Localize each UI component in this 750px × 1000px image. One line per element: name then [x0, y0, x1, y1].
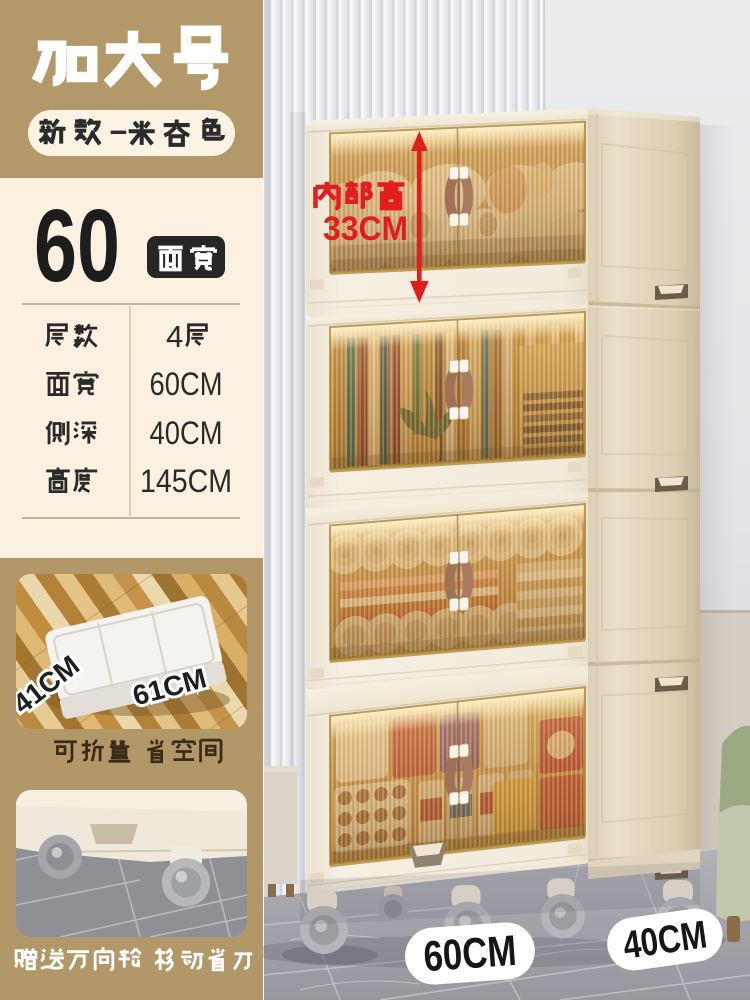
svg-text:4: 4	[166, 319, 183, 354]
svg-text:145CM: 145CM	[140, 463, 232, 499]
svg-text:60: 60	[34, 188, 120, 303]
svg-text:33CM: 33CM	[323, 210, 408, 248]
svg-text:40CM: 40CM	[150, 415, 223, 451]
svg-text:60CM: 60CM	[150, 366, 223, 402]
svg-text:60CM: 60CM	[422, 927, 518, 981]
